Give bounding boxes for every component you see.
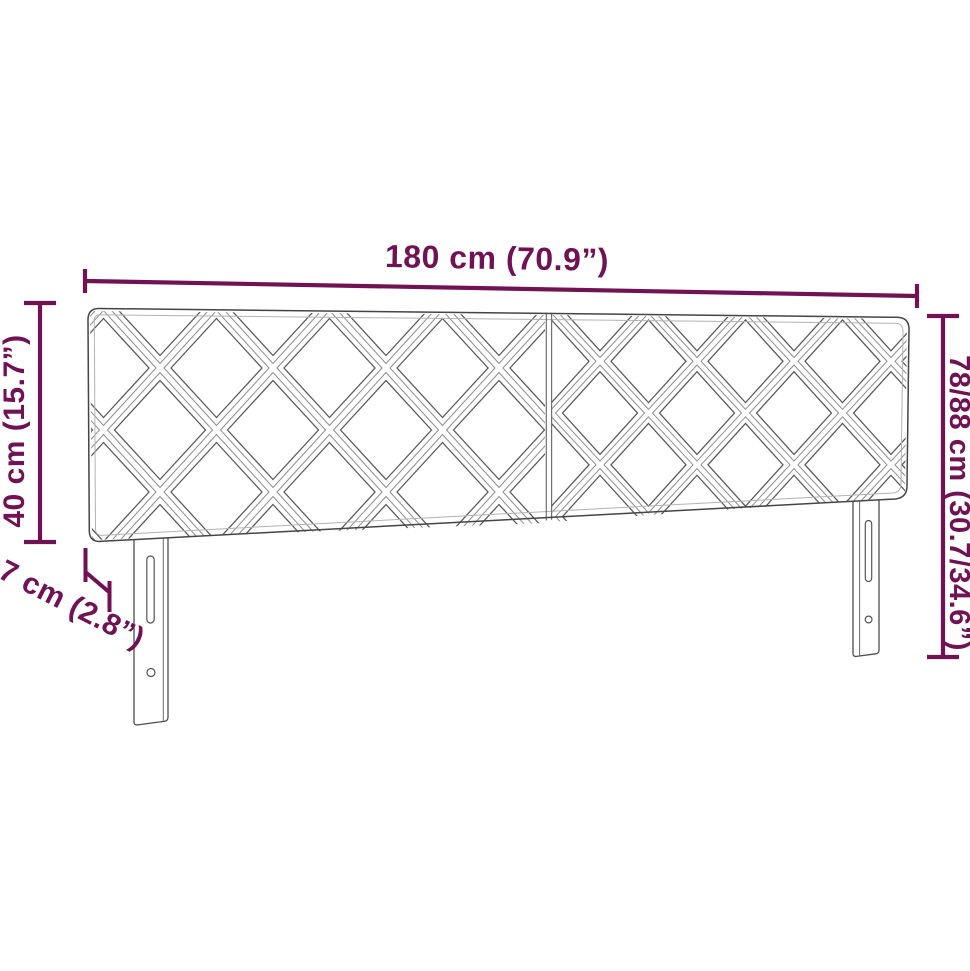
right-leg-hole (865, 616, 872, 623)
right-leg-slot (865, 521, 871, 582)
adjustable-height-label: 78/88 cm (30.7/34.6”) (940, 338, 970, 668)
headboard-line-art (0, 0, 970, 971)
product-dimension-diagram: 180 cm (70.9”) 40 cm (15.7”) 7 cm (2.8”)… (0, 0, 970, 971)
left-leg-slot (147, 556, 154, 623)
left-leg-hole (147, 669, 155, 677)
height-label: 40 cm (15.7”) (0, 326, 33, 536)
width-label: 180 cm (70.9”) (297, 239, 698, 280)
headboard-panel-fill (88, 308, 909, 541)
right-leg (853, 498, 879, 656)
